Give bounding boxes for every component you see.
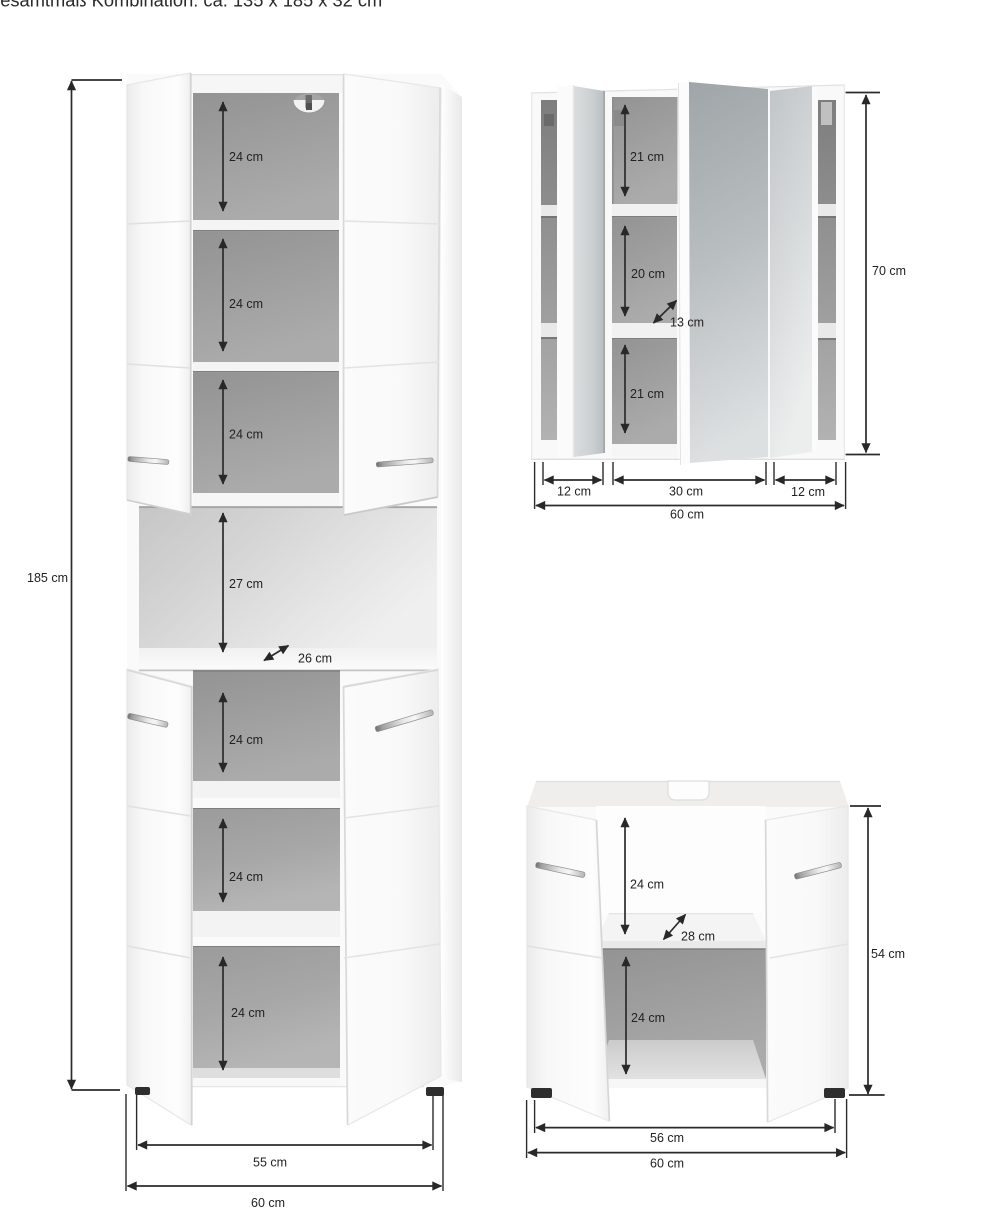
svg-text:55 cm: 55 cm [253,1156,287,1170]
svg-text:12 cm: 12 cm [791,485,825,499]
svg-text:24 cm: 24 cm [631,1011,665,1025]
svg-text:56 cm: 56 cm [650,1131,684,1145]
svg-text:185 cm: 185 cm [27,571,68,585]
svg-text:24 cm: 24 cm [229,733,263,747]
svg-text:30 cm: 30 cm [669,485,703,499]
svg-text:27 cm: 27 cm [229,577,263,591]
svg-text:24 cm: 24 cm [231,1006,265,1020]
svg-text:24 cm: 24 cm [229,870,263,884]
svg-text:21 cm: 21 cm [630,387,664,401]
svg-text:60 cm: 60 cm [251,1196,285,1210]
svg-text:20 cm: 20 cm [631,267,665,281]
svg-text:24 cm: 24 cm [229,150,263,164]
svg-text:21 cm: 21 cm [630,150,664,164]
svg-text:12 cm: 12 cm [557,485,591,499]
svg-text:28 cm: 28 cm [681,930,715,944]
svg-text:24 cm: 24 cm [229,297,263,311]
svg-text:26 cm: 26 cm [298,652,332,666]
svg-text:13 cm: 13 cm [670,316,704,330]
svg-text:54 cm: 54 cm [871,947,905,961]
svg-text:Gesamtmaß Kombination: ca. 135: Gesamtmaß Kombination: ca. 135 x 185 x 3… [0,0,382,11]
svg-text:60 cm: 60 cm [670,508,704,522]
svg-text:24 cm: 24 cm [229,428,263,442]
svg-text:60 cm: 60 cm [650,1157,684,1171]
svg-text:24 cm: 24 cm [630,878,664,892]
svg-text:70 cm: 70 cm [872,264,906,278]
